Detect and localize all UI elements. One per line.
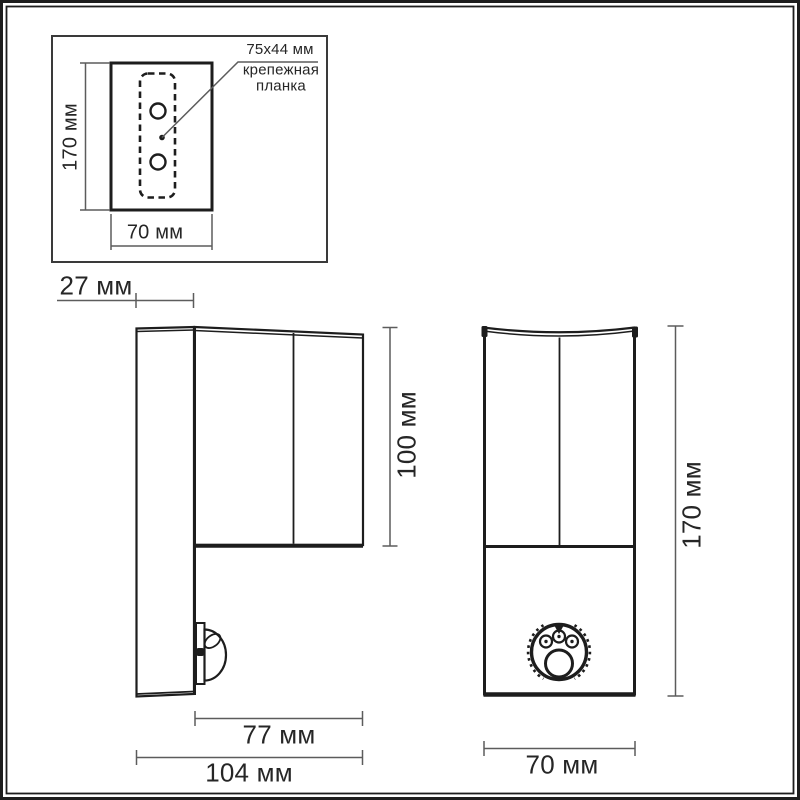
side-plate-depth-label: 27 мм	[60, 272, 133, 299]
inset-height-label: 170 мм	[61, 103, 82, 171]
side-head-depth-label: 77 мм	[243, 721, 316, 748]
inset-width-label: 70 мм	[127, 223, 183, 244]
front-width-label: 70 мм	[526, 751, 599, 778]
side-head-height-label: 100 мм	[393, 391, 420, 479]
technical-drawing-canvas: 170 мм 70 мм 75x44 мм крепежная планка 2…	[0, 0, 800, 800]
motion-sensor-side	[196, 623, 226, 684]
lamp-body-front	[482, 326, 639, 696]
bracket-name-label: крепежная планка	[232, 62, 330, 94]
side-view	[57, 293, 398, 765]
front-view	[482, 326, 684, 756]
side-total-depth-label: 104 мм	[205, 759, 293, 786]
front-height-label: 170 мм	[678, 461, 705, 549]
bracket-size-label: 75x44 мм	[246, 42, 313, 58]
backplate-side-profile	[137, 327, 195, 697]
sensor-hinge	[197, 648, 205, 656]
